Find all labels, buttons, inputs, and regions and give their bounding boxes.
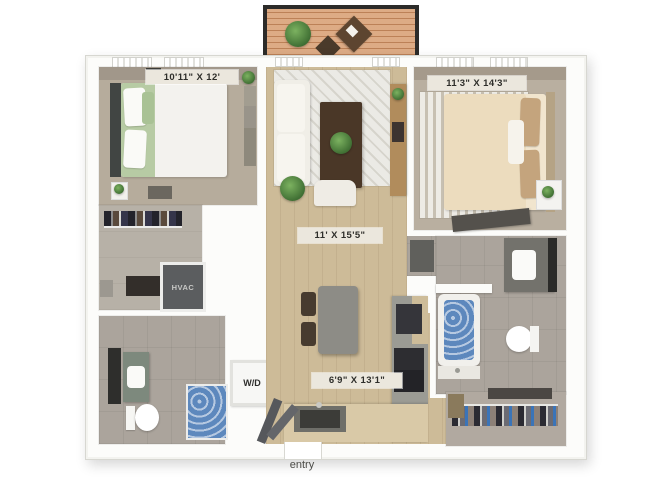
accent-pillow xyxy=(142,92,154,124)
dimension-label-bedroom-left: 10'11" X 12' xyxy=(146,70,238,84)
shoe-boxes xyxy=(448,394,464,418)
pillow xyxy=(508,120,524,164)
vanity-mirror xyxy=(548,238,557,292)
faucet xyxy=(455,368,460,373)
hanging-clothes xyxy=(452,404,558,426)
sofa-cushion xyxy=(277,84,305,132)
dining-chair xyxy=(301,322,316,346)
console-plant xyxy=(392,88,404,100)
balcony-plant xyxy=(285,21,311,47)
dimension-label-kitchen: 6'9" X 13'1" xyxy=(312,373,402,388)
dimension-label-living-room: 11' X 15'5" xyxy=(298,228,382,243)
hanging-clothes xyxy=(104,211,182,228)
sink-basin xyxy=(300,410,340,428)
floorplan-canvas: HVAC W/D entry 10'11" X 12' 11'3" xyxy=(0,0,670,480)
faucet xyxy=(316,402,322,408)
planter-plant xyxy=(114,184,124,194)
bathtub-water xyxy=(444,300,474,360)
toilet-tank xyxy=(126,406,135,430)
kitchen-sink xyxy=(294,406,346,432)
vanity-sink xyxy=(127,366,145,388)
window xyxy=(372,57,400,67)
sofa-cushion xyxy=(277,134,305,182)
bedroom-left-plant xyxy=(242,71,255,84)
entry-opening xyxy=(284,442,322,459)
closet-shelf xyxy=(488,388,552,399)
console-decor xyxy=(392,122,404,142)
toilet-bowl xyxy=(506,326,532,352)
open-door xyxy=(410,240,434,272)
toilet-bowl xyxy=(135,404,159,431)
vanity-sink xyxy=(512,250,536,280)
hvac-label: HVAC xyxy=(172,283,195,292)
toilet-tank xyxy=(530,326,539,352)
living-floor-plant xyxy=(280,176,305,201)
shower xyxy=(186,384,228,440)
washer-dryer-label: W/D xyxy=(243,378,261,388)
dimension-label-bedroom-right: 11'3" X 14'3" xyxy=(428,76,526,90)
window xyxy=(275,57,303,67)
dining-chair xyxy=(301,292,316,316)
sofa xyxy=(274,80,310,186)
laundry-basket xyxy=(100,280,113,297)
armchair xyxy=(314,180,356,206)
coffee-table-plant xyxy=(330,132,352,154)
kitchen-island xyxy=(318,286,358,354)
hvac-closet: HVAC xyxy=(160,262,206,312)
bedroom-left-shelf xyxy=(244,86,256,166)
bathroom-divider-wall xyxy=(436,284,492,293)
bedroom-left-bench xyxy=(148,186,172,199)
bed-headboard xyxy=(110,83,121,177)
stove xyxy=(396,304,422,334)
vanity-mirror xyxy=(108,348,121,404)
entry-label: entry xyxy=(282,459,322,471)
closet-right-entry-floor xyxy=(428,398,448,444)
nightstand-plant xyxy=(542,186,554,198)
pillow xyxy=(123,129,147,168)
